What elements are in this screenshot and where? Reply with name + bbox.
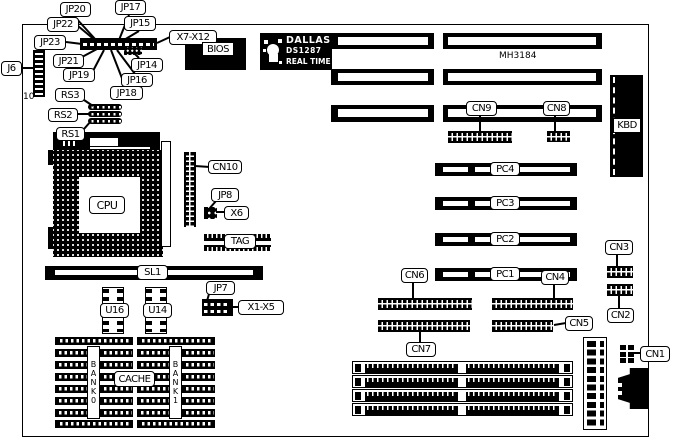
label-x1-x5: X1-X5 xyxy=(238,300,284,315)
label-jp19: JP19 xyxy=(63,68,95,82)
label-jp14: JP14 xyxy=(131,58,163,72)
label-pc1: PC1 xyxy=(490,267,520,281)
label-cache: CACHE xyxy=(114,371,155,387)
label-jp20: JP20 xyxy=(60,2,91,17)
label-cn3: CN3 xyxy=(605,240,633,255)
label-jp18: JP18 xyxy=(110,86,143,100)
label-jp16: JP16 xyxy=(121,73,153,87)
label-cn9: CN9 xyxy=(466,101,497,116)
label-cn5: CN5 xyxy=(565,316,593,331)
label-jp23: JP23 xyxy=(34,35,66,50)
label-rs2: RS2 xyxy=(48,108,78,122)
label-cn6: CN6 xyxy=(401,268,428,283)
label-cn10: CN10 xyxy=(208,160,242,174)
label-pc3: PC3 xyxy=(490,196,520,210)
label-cn8: CN8 xyxy=(543,101,570,116)
callout-lines xyxy=(0,0,673,440)
label-tag: TAG xyxy=(224,234,256,249)
label-sl1: SL1 xyxy=(137,265,168,280)
label-jp22: JP22 xyxy=(47,17,79,32)
label-cn4: CN4 xyxy=(541,270,569,285)
label-u14: U14 xyxy=(143,303,172,318)
label-x6: X6 xyxy=(224,206,249,220)
label-u16: U16 xyxy=(100,303,129,318)
label-cpu: CPU xyxy=(89,196,125,214)
label-jp8: JP8 xyxy=(211,188,239,202)
label-cn7: CN7 xyxy=(406,342,436,357)
label-rs3: RS3 xyxy=(55,88,85,102)
label-pc2: PC2 xyxy=(490,232,520,246)
motherboard-diagram: 10 DALLAS DS1287 REAL TIME xyxy=(0,0,673,440)
label-jp7: JP7 xyxy=(206,281,235,295)
label-cn2: CN2 xyxy=(607,308,634,323)
label-j6: J6 xyxy=(1,61,22,76)
label-pc4: PC4 xyxy=(490,162,520,176)
label-cn1: CN1 xyxy=(640,346,670,362)
label-kbd: KBD xyxy=(613,118,641,133)
label-jp21: JP21 xyxy=(53,54,84,68)
label-jp15: JP15 xyxy=(124,16,156,31)
label-jp17: JP17 xyxy=(115,0,146,15)
label-bios: BIOS xyxy=(202,42,234,56)
label-rs1: RS1 xyxy=(56,127,85,141)
